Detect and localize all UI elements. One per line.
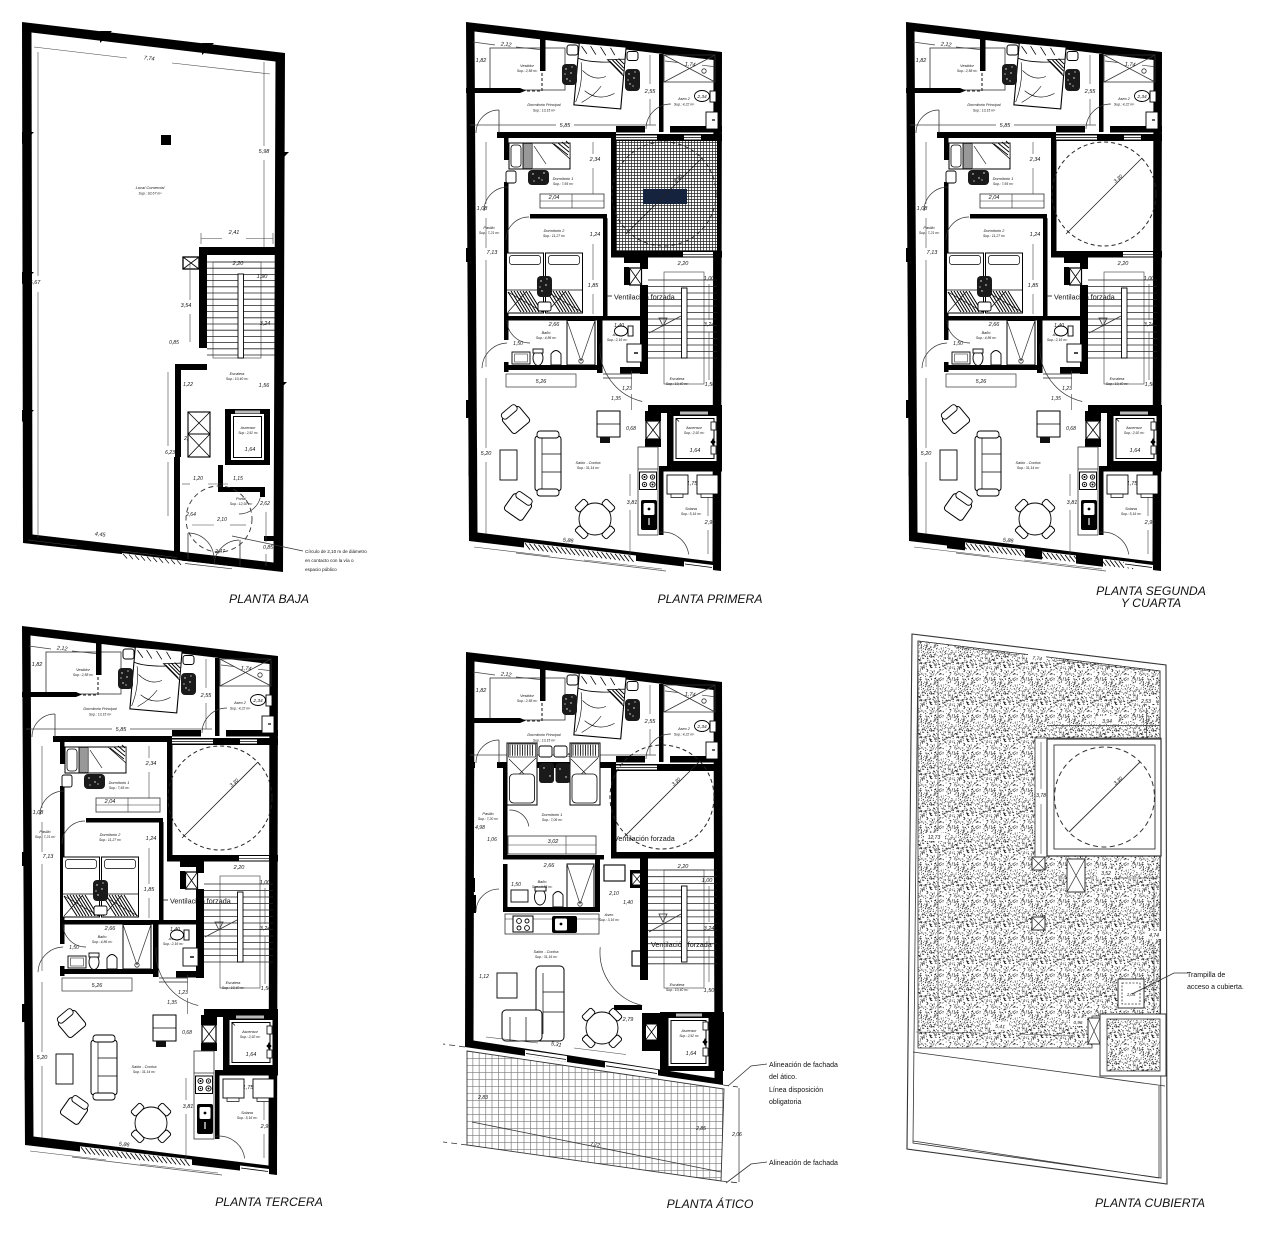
svg-text:2,55: 2,55 — [644, 89, 657, 95]
svg-text:2,64: 2,64 — [185, 512, 196, 518]
svg-text:Vestidor: Vestidor — [960, 64, 975, 68]
svg-text:Círculo de 2,10 m de diámetro: Círculo de 2,10 m de diámetro — [305, 549, 367, 554]
svg-text:Sup.: 2,16 m²: Sup.: 2,16 m² — [1047, 338, 1068, 342]
svg-text:Sup.: 2,58 m²: Sup.: 2,58 m² — [957, 69, 978, 73]
svg-text:1,12: 1,12 — [479, 974, 489, 980]
svg-text:Solana: Solana — [1125, 507, 1137, 511]
svg-text:Y CUARTA: Y CUARTA — [1121, 596, 1181, 610]
svg-text:2,10: 2,10 — [216, 517, 227, 523]
svg-text:acceso a cubierta.: acceso a cubierta. — [1187, 984, 1244, 991]
svg-text:1,56: 1,56 — [259, 383, 271, 389]
svg-text:1,: 1, — [716, 439, 720, 444]
svg-text:1,50: 1,50 — [705, 382, 717, 388]
svg-text:1,08: 1,08 — [33, 810, 45, 816]
svg-text:1,64: 1,64 — [1130, 448, 1141, 454]
svg-text:1,: 1, — [1156, 439, 1160, 444]
svg-text:4,74: 4,74 — [1149, 933, 1159, 939]
svg-text:2,66: 2,66 — [104, 926, 117, 932]
svg-text:1,50: 1,50 — [1145, 382, 1157, 388]
svg-text:Sup.: 7,65 m²: Sup.: 7,65 m² — [553, 182, 574, 186]
svg-text:7,13: 7,13 — [927, 250, 939, 256]
svg-text:Sup.: 5,16 m²: Sup.: 5,16 m² — [1121, 512, 1142, 516]
svg-text:obligatoria: obligatoria — [769, 1099, 801, 1106]
svg-text:PLANTA PRIMERA: PLANTA PRIMERA — [658, 592, 763, 606]
svg-text:Sup.: 2,92 m²: Sup.: 2,92 m² — [238, 431, 258, 435]
svg-text:5,20: 5,20 — [481, 451, 493, 457]
svg-text:2,66: 2,66 — [988, 322, 1001, 328]
svg-text:1,23: 1,23 — [622, 386, 632, 392]
svg-text:PLANTA ÁTICO: PLANTA ÁTICO — [667, 1196, 754, 1211]
svg-text:1,74: 1,74 — [684, 691, 695, 698]
svg-text:0,96: 0,96 — [1074, 1020, 1083, 1025]
svg-text:Sup.: 12,92 m²: Sup.: 12,92 m² — [230, 502, 253, 506]
svg-text:Sup.: 4,22 m²: Sup.: 4,22 m² — [1114, 103, 1135, 107]
svg-text:Sup.: 31,14 m²: Sup.: 31,14 m² — [1017, 466, 1040, 470]
svg-text:4,98: 4,98 — [475, 825, 485, 831]
svg-text:Portal: Portal — [236, 497, 246, 501]
svg-text:Pasillo: Pasillo — [923, 226, 934, 230]
svg-text:Sup.: 5,16 m²: Sup.: 5,16 m² — [681, 512, 702, 516]
svg-text:Sup.: 92,67 m²: Sup.: 92,67 m² — [139, 192, 163, 196]
svg-text:3,24: 3,24 — [704, 926, 715, 932]
svg-text:0,85: 0,85 — [263, 545, 273, 551]
svg-text:3,94: 3,94 — [1102, 719, 1112, 725]
svg-text:2,95: 2,95 — [704, 520, 717, 526]
svg-text:PLANTA CUBIERTA: PLANTA CUBIERTA — [1095, 1196, 1205, 1210]
svg-text:Aseo 2: Aseo 2 — [233, 701, 247, 705]
svg-text:Sup.: 10,40 m²: Sup.: 10,40 m² — [666, 988, 689, 992]
svg-text:3,02: 3,02 — [548, 839, 559, 845]
svg-text:Sup.: 10,40 m²: Sup.: 10,40 m² — [1106, 382, 1129, 386]
svg-text:Sup.: 2,92 m²: Sup.: 2,92 m² — [240, 1035, 261, 1039]
svg-text:1,50: 1,50 — [953, 341, 963, 347]
svg-text:Sup.: 4,22 m²: Sup.: 4,22 m² — [674, 103, 695, 107]
svg-text:1,85: 1,85 — [1028, 283, 1040, 289]
svg-text:Dormitorio 1: Dormitorio 1 — [993, 177, 1014, 181]
svg-text:Solana: Solana — [241, 1111, 253, 1115]
svg-text:5,26: 5,26 — [92, 983, 104, 989]
svg-text:1,90: 1,90 — [257, 274, 269, 280]
svg-text:1,50: 1,50 — [261, 986, 273, 992]
svg-text:5,67: 5,67 — [30, 280, 42, 286]
svg-text:Sup.: 2,16 m²: Sup.: 2,16 m² — [163, 942, 184, 946]
svg-text:2,20: 2,20 — [1117, 261, 1130, 267]
svg-text:Sup.: 2,58 m²: Sup.: 2,58 m² — [73, 673, 94, 677]
svg-text:2,34: 2,34 — [1029, 157, 1041, 163]
svg-text:Pasillo: Pasillo — [482, 812, 493, 816]
svg-text:0,68: 0,68 — [626, 426, 636, 432]
svg-text:3,24: 3,24 — [1144, 322, 1155, 328]
svg-text:espacio público: espacio público — [305, 567, 337, 572]
svg-text:Sup.: 4,86 m²: Sup.: 4,86 m² — [976, 336, 997, 340]
svg-text:2,12: 2,12 — [55, 645, 67, 652]
svg-text:1,64: 1,64 — [245, 447, 256, 453]
svg-text:5,41: 5,41 — [995, 1024, 1005, 1031]
svg-text:Sup.: 4,86 m²: Sup.: 4,86 m² — [536, 336, 557, 340]
svg-text:2,95: 2,95 — [1144, 520, 1157, 526]
svg-text:12,73: 12,73 — [928, 835, 941, 841]
svg-text:Ascensor: Ascensor — [681, 1029, 698, 1033]
svg-text:1,82: 1,82 — [916, 58, 927, 64]
svg-text:Sup.: 4,86 m²: Sup.: 4,86 m² — [92, 940, 113, 944]
svg-text:Escalera: Escalera — [1110, 377, 1125, 381]
svg-text:3,81: 3,81 — [183, 1104, 194, 1110]
svg-text:Sup.: 7,21 m²: Sup.: 7,21 m² — [919, 231, 940, 235]
svg-text:Sup.: 4,22 m²: Sup.: 4,22 m² — [674, 733, 695, 737]
svg-text:5,85: 5,85 — [560, 123, 572, 129]
svg-text:Ascensor: Ascensor — [241, 1030, 259, 1034]
svg-text:Sup.: 3,16 m²: Sup.: 3,16 m² — [599, 918, 620, 922]
svg-text:1,22: 1,22 — [183, 382, 193, 388]
svg-text:3,78: 3,78 — [1036, 793, 1046, 799]
svg-text:7,13: 7,13 — [487, 250, 499, 256]
svg-text:Línea disposición: Línea disposición — [769, 1087, 823, 1094]
svg-text:5,26: 5,26 — [976, 379, 988, 385]
svg-text:Local Comercial: Local Comercial — [136, 185, 165, 190]
svg-text:1,85: 1,85 — [144, 887, 156, 893]
svg-text:Sup.: 7,21 m²: Sup.: 7,21 m² — [35, 835, 56, 839]
svg-text:2,20: 2,20 — [677, 261, 690, 267]
svg-text:2,12: 2,12 — [939, 41, 951, 48]
svg-text:Dormitorio 2: Dormitorio 2 — [984, 229, 1006, 233]
svg-text:Dormitorio 2: Dormitorio 2 — [544, 229, 566, 233]
svg-text:en contacto con la vía o: en contacto con la vía o — [305, 558, 354, 563]
svg-text:2,83: 2,83 — [477, 1095, 488, 1101]
svg-text:Sup.: 2,92 m²: Sup.: 2,92 m² — [1124, 431, 1145, 435]
svg-text:7,74: 7,74 — [1032, 655, 1043, 662]
svg-text:1,50: 1,50 — [513, 341, 523, 347]
svg-text:2,66: 2,66 — [543, 863, 556, 869]
svg-text:1,00: 1,00 — [704, 276, 716, 282]
svg-text:Aseo: Aseo — [604, 913, 614, 917]
svg-text:Pasillo: Pasillo — [39, 830, 50, 834]
svg-text:Sup.: 7,06 m²: Sup.: 7,06 m² — [542, 818, 563, 822]
svg-text:Sup.: 7,20 m²: Sup.: 7,20 m² — [478, 817, 499, 821]
svg-text:1,74: 1,74 — [240, 665, 251, 672]
svg-text:Vestidor: Vestidor — [520, 694, 535, 698]
svg-text:5,85: 5,85 — [116, 727, 128, 733]
svg-text:2,55: 2,55 — [200, 693, 213, 699]
svg-text:Sup.: 13,15 m²: Sup.: 13,15 m² — [533, 109, 556, 113]
svg-text:2,06: 2,06 — [731, 1132, 742, 1138]
svg-text:3,24: 3,24 — [260, 926, 271, 932]
svg-text:Sup.: 7,65 m²: Sup.: 7,65 m² — [109, 786, 130, 790]
svg-text:2,20: 2,20 — [232, 261, 245, 267]
svg-text:5,20: 5,20 — [921, 451, 933, 457]
svg-text:PLANTA TERCERA: PLANTA TERCERA — [215, 1195, 323, 1209]
svg-text:1,64: 1,64 — [246, 1052, 257, 1058]
svg-text:Dormitorio Principal: Dormitorio Principal — [527, 733, 560, 737]
svg-text:2,04: 2,04 — [988, 195, 1000, 201]
svg-text:5,20: 5,20 — [37, 1055, 49, 1061]
svg-text:1,35: 1,35 — [1051, 396, 1061, 402]
svg-text:2,66: 2,66 — [548, 322, 561, 328]
svg-text:Aseo 2: Aseo 2 — [677, 727, 691, 731]
svg-text:Sup.: 2,92 m²: Sup.: 2,92 m² — [684, 431, 705, 435]
svg-text:Sup.: 2,58 m²: Sup.: 2,58 m² — [517, 69, 538, 73]
svg-text:Solana: Solana — [685, 507, 697, 511]
svg-text:Aseo 2: Aseo 2 — [677, 97, 691, 101]
svg-text:1,50: 1,50 — [69, 945, 79, 951]
svg-text:6,23: 6,23 — [165, 450, 175, 456]
svg-text:1,00: 1,00 — [260, 880, 272, 886]
svg-text:Baño: Baño — [982, 331, 991, 335]
svg-text:1,64: 1,64 — [690, 448, 701, 454]
svg-text:2,95: 2,95 — [260, 1124, 273, 1130]
svg-text:2,12: 2,12 — [499, 41, 511, 48]
svg-text:Dormitorio Principal: Dormitorio Principal — [967, 103, 1000, 107]
svg-text:Salón - Cocina: Salón - Cocina — [1016, 461, 1041, 465]
svg-text:2,55: 2,55 — [1084, 89, 1097, 95]
svg-text:1,23: 1,23 — [1062, 386, 1072, 392]
svg-text:2,12: 2,12 — [499, 671, 511, 678]
svg-text:PLANTA BAJA: PLANTA BAJA — [229, 592, 309, 606]
svg-text:Sup.: 31,14 m²: Sup.: 31,14 m² — [577, 466, 600, 470]
svg-text:1,: 1, — [272, 1043, 276, 1048]
svg-text:1,85: 1,85 — [588, 283, 600, 289]
svg-text:Baño: Baño — [542, 331, 551, 335]
svg-text:Baño: Baño — [538, 880, 547, 884]
svg-text:3,81: 3,81 — [1067, 500, 1078, 506]
svg-text:Aseo 2: Aseo 2 — [1117, 97, 1131, 101]
svg-text:Dormitorio 1: Dormitorio 1 — [553, 177, 574, 181]
svg-text:2,34: 2,34 — [696, 724, 707, 730]
svg-text:1,20: 1,20 — [193, 476, 203, 482]
svg-text:Sup.: 7,21 m²: Sup.: 7,21 m² — [479, 231, 500, 235]
svg-text:3,52: 3,52 — [1101, 871, 1111, 877]
svg-text:5,98: 5,98 — [259, 149, 271, 155]
svg-text:0,68: 0,68 — [1066, 426, 1076, 432]
svg-text:1,50: 1,50 — [704, 988, 716, 994]
svg-text:Sup.: 10,40 m²: Sup.: 10,40 m² — [222, 986, 245, 990]
svg-text:Sup.: 2,92 m²: Sup.: 2,92 m² — [679, 1034, 699, 1038]
svg-text:Sup.: 11,27 m²: Sup.: 11,27 m² — [983, 234, 1006, 238]
svg-text:Sup.: 13,15 m²: Sup.: 13,15 m² — [973, 109, 996, 113]
svg-text:0,85: 0,85 — [169, 340, 179, 346]
svg-text:2,34: 2,34 — [252, 698, 263, 704]
svg-text:3,24: 3,24 — [704, 322, 715, 328]
svg-text:Sup.: 4,22 m²: Sup.: 4,22 m² — [230, 707, 251, 711]
svg-text:Alineación de fachada: Alineación de fachada — [769, 1062, 838, 1069]
svg-text:1,64: 1,64 — [686, 1051, 697, 1057]
svg-text:Escalera: Escalera — [226, 981, 241, 985]
svg-text:Ascensor: Ascensor — [685, 426, 703, 430]
svg-text:Sup.: 13,15 m²: Sup.: 13,15 m² — [533, 739, 556, 743]
svg-text:2,55: 2,55 — [644, 719, 657, 725]
svg-text:1,24: 1,24 — [146, 836, 157, 842]
svg-text:1,50: 1,50 — [511, 882, 521, 888]
svg-text:1,82: 1,82 — [476, 688, 487, 694]
svg-text:1,74: 1,74 — [684, 61, 695, 68]
svg-text:Vestidor: Vestidor — [76, 668, 91, 672]
svg-text:Sup.: 31,14 m²: Sup.: 31,14 m² — [133, 1070, 156, 1074]
svg-text:0,68: 0,68 — [182, 1030, 192, 1036]
svg-text:Ascensor: Ascensor — [240, 426, 257, 430]
svg-text:2,34: 2,34 — [589, 157, 601, 163]
svg-text:3,54: 3,54 — [181, 303, 192, 309]
svg-text:Salón - Cocina: Salón - Cocina — [534, 950, 559, 954]
svg-text:2,53: 2,53 — [1140, 699, 1151, 705]
svg-text:Baño: Baño — [98, 935, 107, 939]
svg-text:Sup.: 11,27 m²: Sup.: 11,27 m² — [99, 838, 122, 842]
svg-text:Sup.: 2,58 m²: Sup.: 2,58 m² — [517, 699, 538, 703]
svg-text:2,62: 2,62 — [259, 501, 270, 507]
svg-text:Sup.: 2,16 m²: Sup.: 2,16 m² — [607, 338, 628, 342]
svg-text:Ventilación forzada: Ventilación forzada — [614, 834, 675, 843]
svg-text:Dormitorio 1: Dormitorio 1 — [542, 813, 563, 817]
svg-text:1,08: 1,08 — [477, 206, 489, 212]
svg-text:1,00: 1,00 — [1144, 276, 1156, 282]
svg-text:1,24: 1,24 — [590, 232, 601, 238]
svg-text:Dormitorio 2: Dormitorio 2 — [100, 833, 122, 837]
svg-text:Sup.: 10,40 m²: Sup.: 10,40 m² — [666, 382, 689, 386]
svg-text:1,06: 1,06 — [487, 837, 497, 843]
svg-text:2,10: 2,10 — [608, 891, 619, 897]
svg-text:Sup.: 5,16 m²: Sup.: 5,16 m² — [237, 1116, 258, 1120]
svg-text:Salón - Cocina: Salón - Cocina — [132, 1065, 157, 1069]
svg-text:Escalera: Escalera — [670, 983, 685, 987]
svg-text:7,13: 7,13 — [43, 854, 55, 860]
svg-text:Alineación de fachada: Alineación de fachada — [769, 1160, 838, 1167]
svg-text:1,35: 1,35 — [167, 1000, 177, 1006]
svg-text:3,81: 3,81 — [627, 500, 638, 506]
svg-text:Sup.: 10,40 m²: Sup.: 10,40 m² — [226, 377, 249, 381]
svg-text:Dormitorio Principal: Dormitorio Principal — [83, 707, 116, 711]
svg-text:Trampilla de: Trampilla de — [1187, 972, 1225, 979]
svg-text:Ascensor: Ascensor — [1125, 426, 1143, 430]
svg-text:Dormitorio Principal: Dormitorio Principal — [527, 103, 560, 107]
svg-text:Salón - Cocina: Salón - Cocina — [576, 461, 601, 465]
svg-text:1,24: 1,24 — [1030, 232, 1041, 238]
svg-text:2,20: 2,20 — [233, 865, 246, 871]
svg-text:2,04: 2,04 — [104, 799, 116, 805]
svg-text:2,79: 2,79 — [622, 1017, 634, 1023]
svg-text:2,41: 2,41 — [228, 230, 240, 236]
svg-text:Escalera: Escalera — [230, 372, 245, 376]
svg-text:2,85: 2,85 — [695, 1126, 706, 1132]
svg-text:5,85: 5,85 — [1000, 123, 1012, 129]
svg-text:1,08: 1,08 — [917, 206, 929, 212]
svg-text:Sup.: 31,16 m²: Sup.: 31,16 m² — [535, 955, 558, 959]
svg-text:Vestidor: Vestidor — [520, 64, 535, 68]
svg-text:1,82: 1,82 — [476, 58, 487, 64]
svg-text:Sup.: 11,27 m²: Sup.: 11,27 m² — [543, 234, 566, 238]
svg-text:Pasillo: Pasillo — [483, 226, 494, 230]
svg-text:Escalera: Escalera — [670, 377, 685, 381]
svg-text:1,15: 1,15 — [233, 476, 243, 482]
svg-text:2,34: 2,34 — [1136, 94, 1147, 100]
svg-text:1,23: 1,23 — [178, 990, 188, 996]
svg-text:5,26: 5,26 — [536, 379, 548, 385]
svg-text:3,24: 3,24 — [260, 321, 271, 327]
svg-text:1,74: 1,74 — [1124, 61, 1135, 68]
svg-text:2,34: 2,34 — [145, 761, 157, 767]
svg-text:2,20: 2,20 — [677, 864, 690, 870]
svg-text:Sup.: 7,65 m²: Sup.: 7,65 m² — [993, 182, 1014, 186]
svg-text:2,34: 2,34 — [696, 94, 707, 100]
svg-text:Sup.: 13,15 m²: Sup.: 13,15 m² — [89, 713, 112, 717]
svg-text:2,04: 2,04 — [548, 195, 560, 201]
svg-text:1,82: 1,82 — [32, 662, 43, 668]
svg-text:Dormitorio 1: Dormitorio 1 — [109, 781, 130, 785]
svg-text:1,35: 1,35 — [611, 396, 621, 402]
svg-text:1,00: 1,00 — [702, 878, 714, 884]
svg-text:1,40: 1,40 — [623, 900, 633, 906]
svg-text:del ático.: del ático. — [769, 1074, 797, 1081]
